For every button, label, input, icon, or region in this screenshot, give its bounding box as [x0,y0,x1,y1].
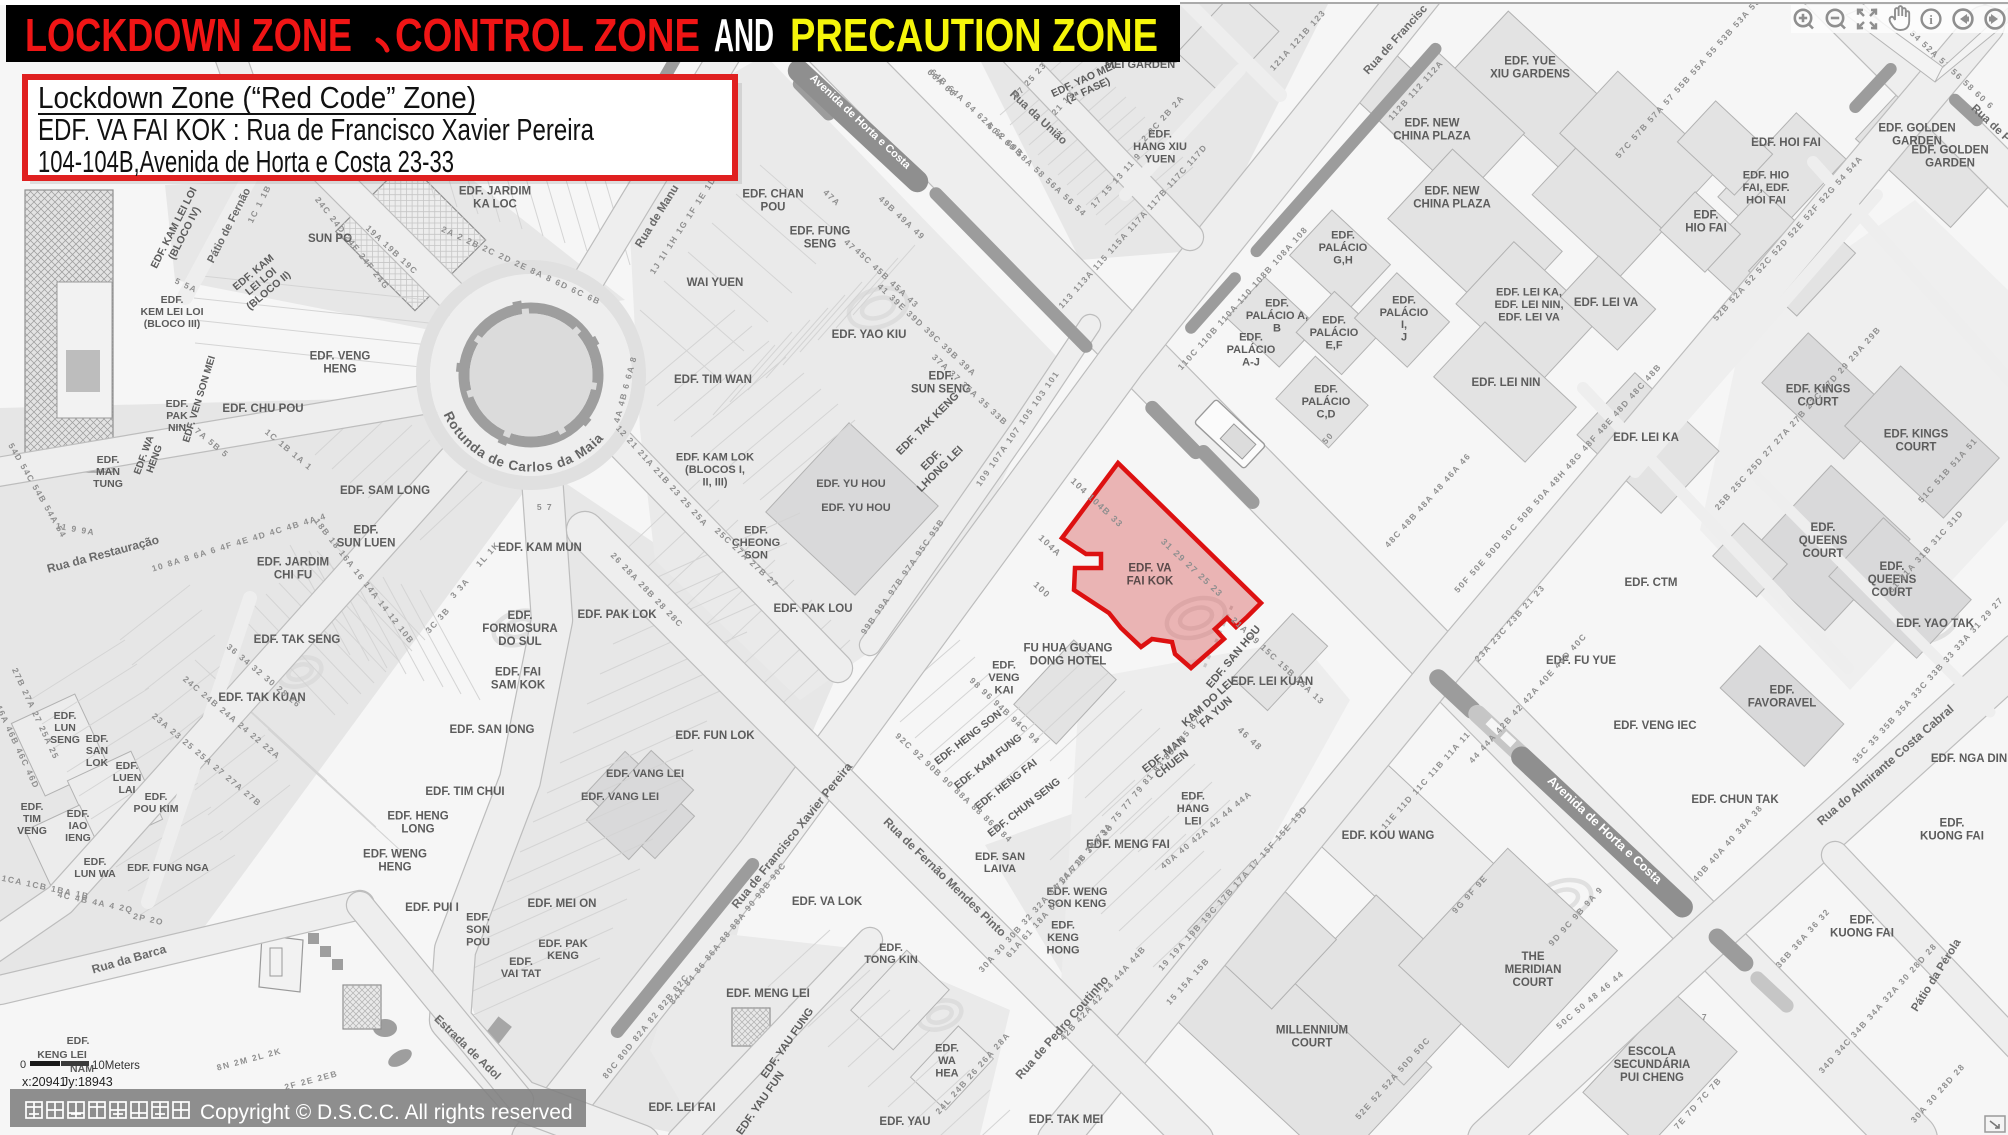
svg-text:Jy:18943: Jy:18943 [62,1075,113,1089]
svg-text:10Meters: 10Meters [92,1060,140,1072]
svg-text:EDF. NEWCHINA PLAZA: EDF. NEWCHINA PLAZA [1393,118,1471,143]
svg-text:EDF. SAM LONG: EDF. SAM LONG [340,485,430,497]
svg-text:EDF. CTM: EDF. CTM [1624,577,1677,589]
svg-text:EDF. SAN IONG: EDF. SAN IONG [450,724,535,736]
svg-text:EDF. PAK LOK: EDF. PAK LOK [577,609,657,621]
svg-text:EDF. TAK MEI: EDF. TAK MEI [1029,1114,1104,1126]
svg-text:EDF. YAU: EDF. YAU [879,1116,930,1128]
svg-text:EDF.SONPOU: EDF.SONPOU [466,912,490,949]
svg-text:EDF. TIM CHUI: EDF. TIM CHUI [425,786,504,798]
svg-text:EDF.IAOIENG: EDF.IAOIENG [65,808,91,844]
svg-text:EDF. YAO TAK: EDF. YAO TAK [1896,618,1974,630]
svg-text:EDF.SANLOK: EDF.SANLOK [86,733,109,769]
svg-text:WAI YUEN: WAI YUEN [687,277,744,289]
svg-text:EDF.KENGHONG: EDF.KENGHONG [1047,920,1080,957]
svg-text:EDF. YAO KIU: EDF. YAO KIU [832,329,907,341]
svg-text:EDF. VANG LEI: EDF. VANG LEI [581,791,659,803]
svg-text:EDF. VAFAI KOK: EDF. VAFAI KOK [1127,563,1174,588]
svg-text:EDF. HOI FAI: EDF. HOI FAI [1751,137,1821,149]
svg-text:7: 7 [1702,1012,1708,1022]
svg-text:EDF. TAK SENG: EDF. TAK SENG [254,634,341,646]
svg-text:Copyright © D.S.C.C. All right: Copyright © D.S.C.C. All rights reserved [200,1101,573,1124]
svg-text:EDF. LEI VA: EDF. LEI VA [1574,297,1638,309]
svg-text:EDF. LEI FAI: EDF. LEI FAI [648,1102,715,1114]
svg-text:EDF. CHU POU: EDF. CHU POU [222,403,303,415]
svg-text:EDF. PAK LOU: EDF. PAK LOU [773,603,852,615]
svg-text:FU HUA GUANGDONG HOTEL: FU HUA GUANGDONG HOTEL [1023,643,1112,668]
svg-text:EDF. MEI ON: EDF. MEI ON [527,898,596,910]
svg-text:5 7: 5 7 [537,502,553,512]
svg-text:EDF. TIM WAN: EDF. TIM WAN [674,374,752,386]
svg-text:LOCKDOWN ZONECONTROL ZONEANDPR: LOCKDOWN ZONECONTROL ZONEANDPRECAUTION Z… [25,9,1158,61]
svg-text:EDF. FUN LOK: EDF. FUN LOK [675,730,755,742]
svg-text:x:20941: x:20941 [22,1075,67,1089]
svg-text:EDF. VA LOK: EDF. VA LOK [792,896,863,908]
svg-text:EDF. FAISAM KOK: EDF. FAISAM KOK [491,667,546,692]
svg-text:EDF. LEI KA,EDF. LEI NIN,EDF.: EDF. LEI KA,EDF. LEI NIN,EDF. LEI VA [1494,287,1563,324]
svg-text:EDF. KOU WANG: EDF. KOU WANG [1342,830,1435,842]
svg-text:EDF. MENG LEI: EDF. MENG LEI [726,988,810,1000]
svg-text:0: 0 [20,1059,26,1071]
svg-text:EDF. LEI NIN: EDF. LEI NIN [1471,377,1540,389]
svg-text:EDF. KAM MUN: EDF. KAM MUN [498,542,582,554]
svg-text:EDF. NGA DIN: EDF. NGA DIN [1931,753,2007,765]
svg-text:EDF. NEWCHINA PLAZA: EDF. NEWCHINA PLAZA [1413,186,1491,211]
svg-text:EDF. PUI I: EDF. PUI I [405,902,459,914]
svg-text:EDF. VENG IEC: EDF. VENG IEC [1613,720,1696,732]
svg-text:EDF. VANG LEI: EDF. VANG LEI [606,768,684,780]
svg-text:EDF. YU HOU: EDF. YU HOU [816,478,886,490]
svg-text:EDF.WAHEA: EDF.WAHEA [935,1043,959,1080]
svg-text:EDF. HIOFAI, EDF.HOI FAI: EDF. HIOFAI, EDF.HOI FAI [1742,170,1789,207]
svg-text:EDF.PAKNIN: EDF.PAKNIN [166,398,189,434]
svg-text:EDF. LEI KA: EDF. LEI KA [1613,432,1679,444]
svg-text:EDF. FUNG NGA: EDF. FUNG NGA [127,862,209,874]
svg-text:EDF. YU HOU: EDF. YU HOU [821,502,891,514]
svg-text:EDF.MANTUNG: EDF.MANTUNG [93,454,123,490]
svg-text:EDF. CHUN TAK: EDF. CHUN TAK [1691,794,1779,806]
svg-text:i: i [1929,12,1933,27]
